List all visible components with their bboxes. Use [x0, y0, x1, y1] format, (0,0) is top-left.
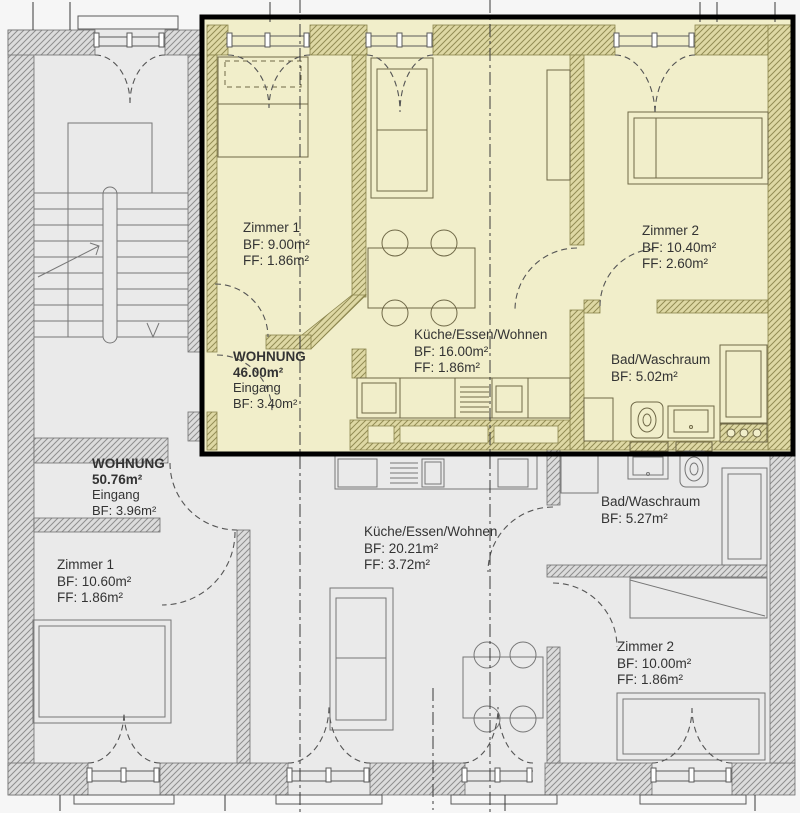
room-bf: BF: 10.00m²	[617, 656, 691, 673]
room-name: Zimmer 1	[243, 220, 310, 237]
entry-bf: BF: 3.96m²	[92, 503, 165, 519]
apartment-name: WOHNUNG	[92, 456, 165, 472]
radiator	[676, 442, 712, 451]
room-label-kueche-bottom: Küche/Essen/Wohnen BF: 20.21m² FF: 3.72m…	[364, 524, 497, 574]
room-name: Küche/Essen/Wohnen	[414, 327, 547, 344]
room-name: Zimmer 2	[642, 223, 716, 240]
room-name: Zimmer 1	[57, 557, 131, 574]
floorplan: Zimmer 1 BF: 9.00m² FF: 1.86m² Küche/Ess…	[0, 0, 800, 813]
room-ff: FF: 1.86m²	[617, 672, 691, 689]
room-ff: FF: 2.60m²	[642, 256, 716, 273]
room-ff: FF: 1.86m²	[414, 360, 547, 377]
room-label-zimmer1-top: Zimmer 1 BF: 9.00m² FF: 1.86m²	[243, 220, 310, 270]
room-name: Küche/Essen/Wohnen	[364, 524, 497, 541]
apartment-name: WOHNUNG	[233, 349, 306, 365]
room-bf: BF: 5.02m²	[611, 369, 710, 386]
room-label-bad-top: Bad/Waschraum BF: 5.02m²	[611, 352, 710, 385]
floorplan-drawing	[0, 0, 800, 813]
room-bf: BF: 20.21m²	[364, 541, 497, 558]
apartment-area: 46.00m²	[233, 365, 306, 381]
room-bf: BF: 5.27m²	[601, 511, 700, 528]
apartment-area: 50.76m²	[92, 472, 165, 488]
room-bf: BF: 10.40m²	[642, 240, 716, 257]
room-label-zimmer1-bottom: Zimmer 1 BF: 10.60m² FF: 1.86m²	[57, 557, 131, 607]
room-name: Bad/Waschraum	[601, 494, 700, 511]
room-name: Bad/Waschraum	[611, 352, 710, 369]
room-label-kueche-top: Küche/Essen/Wohnen BF: 16.00m² FF: 1.86m…	[414, 327, 547, 377]
room-label-zimmer2-bottom: Zimmer 2 BF: 10.00m² FF: 1.86m²	[617, 639, 691, 689]
room-bf: BF: 10.60m²	[57, 574, 131, 591]
room-ff: FF: 1.86m²	[243, 253, 310, 270]
room-ff: FF: 1.86m²	[57, 590, 131, 607]
apartment-label-top: WOHNUNG 46.00m² Eingang BF: 3.40m²	[233, 349, 306, 411]
room-ff: FF: 3.72m²	[364, 557, 497, 574]
entry-label: Eingang	[233, 380, 306, 396]
room-bf: BF: 9.00m²	[243, 237, 310, 254]
apartment-label-bottom: WOHNUNG 50.76m² Eingang BF: 3.96m²	[92, 456, 165, 518]
room-label-zimmer2-top: Zimmer 2 BF: 10.40m² FF: 2.60m²	[642, 223, 716, 273]
room-label-bad-bottom: Bad/Waschraum BF: 5.27m²	[601, 494, 700, 527]
entry-label: Eingang	[92, 487, 165, 503]
room-bf: BF: 16.00m²	[414, 344, 547, 361]
entry-porch	[78, 16, 178, 29]
radiator	[630, 442, 668, 451]
room-name: Zimmer 2	[617, 639, 691, 656]
entry-bf: BF: 3.40m²	[233, 396, 306, 412]
